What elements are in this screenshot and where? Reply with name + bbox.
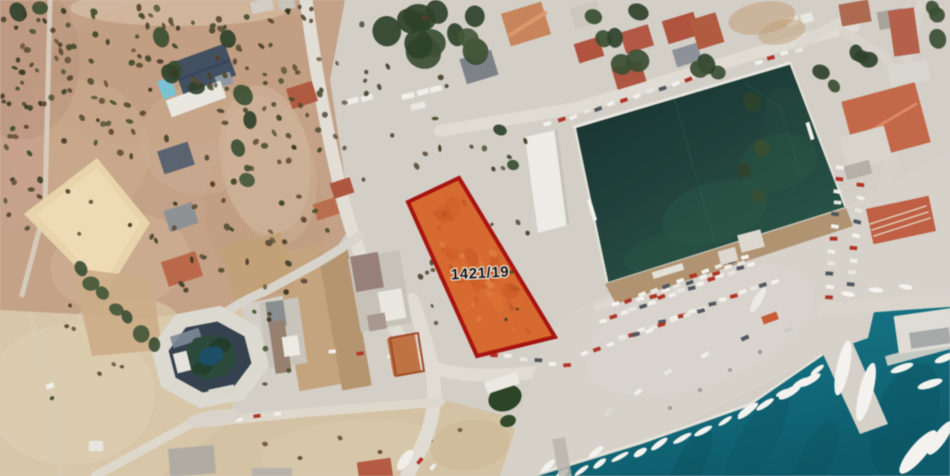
svg-text:1421/19: 1421/19	[450, 263, 509, 283]
